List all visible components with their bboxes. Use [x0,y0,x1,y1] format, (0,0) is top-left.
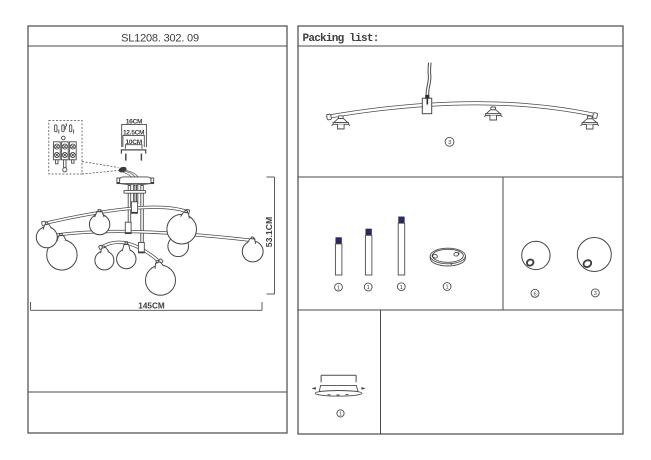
svg-text:1: 1 [337,285,340,291]
svg-text:1: 1 [400,285,403,291]
svg-text:1: 1 [339,412,342,418]
svg-text:3: 3 [594,291,597,297]
svg-text:3: 3 [448,140,451,146]
svg-text:1: 1 [367,285,370,291]
svg-text:SL1208. 302. 09: SL1208. 302. 09 [121,32,199,44]
svg-text:53.1CM: 53.1CM [264,217,274,247]
svg-text:Packing list:: Packing list: [303,33,379,45]
svg-text:6: 6 [533,291,536,297]
svg-text:145CM: 145CM [138,302,165,311]
svg-text:1: 1 [446,285,449,291]
